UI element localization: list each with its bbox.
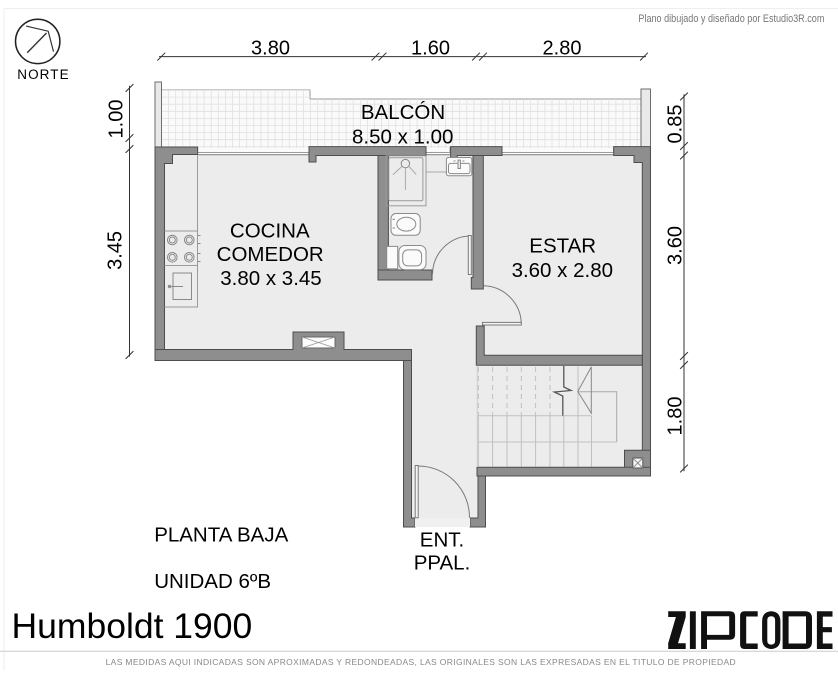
svg-text:UNIDAD 6ºB: UNIDAD 6ºB [154,570,271,593]
svg-text:Plano dibujado y diseñado por: Plano dibujado y diseñado por Estudio3R.… [638,13,824,25]
svg-text:3.80 x 3.45: 3.80 x 3.45 [220,267,321,290]
svg-text:COMEDOR: COMEDOR [217,243,324,266]
svg-text:3.80: 3.80 [251,37,290,59]
svg-text:BALCÓN: BALCÓN [361,101,445,124]
svg-text:0.85: 0.85 [665,105,687,144]
svg-text:1.80: 1.80 [665,397,687,436]
svg-text:3.60: 3.60 [665,226,687,265]
svg-text:LAS MEDIDAS AQUI INDICADAS SON: LAS MEDIDAS AQUI INDICADAS SON APROXIMAD… [106,657,736,667]
svg-text:COCINA: COCINA [230,220,310,243]
svg-text:3.45: 3.45 [105,231,127,270]
svg-text:PPAL.: PPAL. [414,552,471,575]
svg-text:1.60: 1.60 [411,37,450,59]
svg-text:ESTAR: ESTAR [529,235,596,258]
svg-text:2.80: 2.80 [543,37,582,59]
svg-text:3.60 x 2.80: 3.60 x 2.80 [512,259,613,282]
svg-text:PLANTA BAJA: PLANTA BAJA [154,523,288,546]
svg-text:8.50 x 1.00: 8.50 x 1.00 [352,125,453,148]
svg-text:1.00: 1.00 [106,100,128,139]
svg-text:NORTE: NORTE [17,67,70,82]
svg-text:ENT.: ENT. [420,528,464,551]
svg-text:Humboldt 1900: Humboldt 1900 [12,606,253,646]
